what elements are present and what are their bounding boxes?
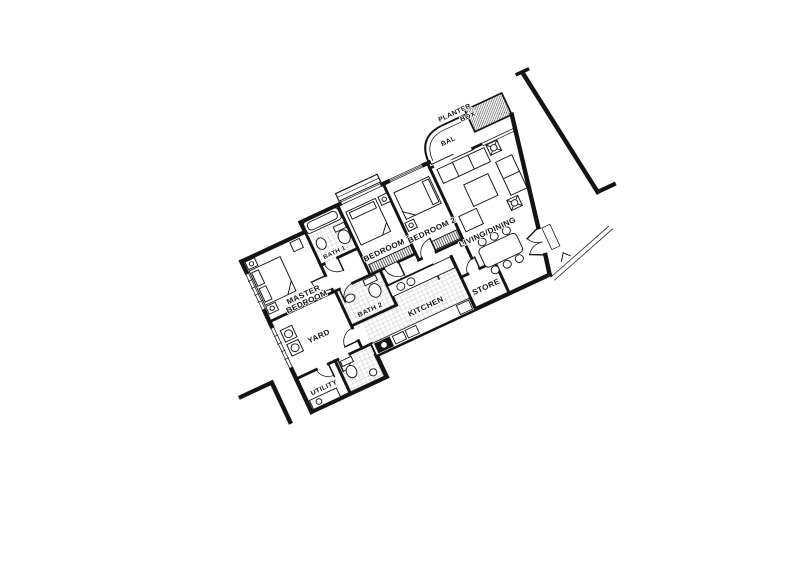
door-leaf	[328, 364, 334, 377]
door-arc	[462, 257, 479, 274]
stool-icon	[290, 238, 304, 251]
plant-icon	[486, 140, 501, 155]
neighbor-wall	[241, 383, 290, 437]
door-arc	[316, 364, 333, 381]
wall-end-cap	[517, 69, 527, 74]
entrance-step	[542, 224, 560, 249]
plant-icon	[507, 195, 522, 210]
wall-utility-top	[296, 361, 335, 379]
floor-plan-canvas: MASTER BEDROOM BATH 1 BEDROOM 1 BEDROOM …	[0, 0, 800, 566]
door-leaf	[475, 257, 480, 268]
label-store: STORE	[471, 277, 501, 297]
corridor-wall	[522, 65, 597, 199]
door-leaf	[345, 341, 358, 347]
entrance-arrow-icon	[558, 251, 570, 262]
floor-plan-svg: MASTER BEDROOM BATH 1 BEDROOM 1 BEDROOM …	[0, 0, 800, 566]
door-leaf	[338, 258, 344, 271]
label-balcony: BAL	[440, 135, 457, 148]
wall-living-right-lower	[541, 255, 553, 275]
exterior-walls	[233, 115, 589, 412]
window-under-planter	[482, 128, 517, 146]
door-leaf	[398, 262, 404, 275]
label-yard: YARD	[306, 327, 331, 345]
door-arc	[339, 328, 358, 347]
armchair-icon	[459, 208, 484, 231]
door-leaf	[311, 276, 325, 283]
entrance-door-arc	[527, 242, 545, 255]
entrance-door-leaf	[530, 249, 546, 261]
corridor-wall-return	[598, 184, 614, 192]
coffee-table-icon	[464, 174, 498, 207]
